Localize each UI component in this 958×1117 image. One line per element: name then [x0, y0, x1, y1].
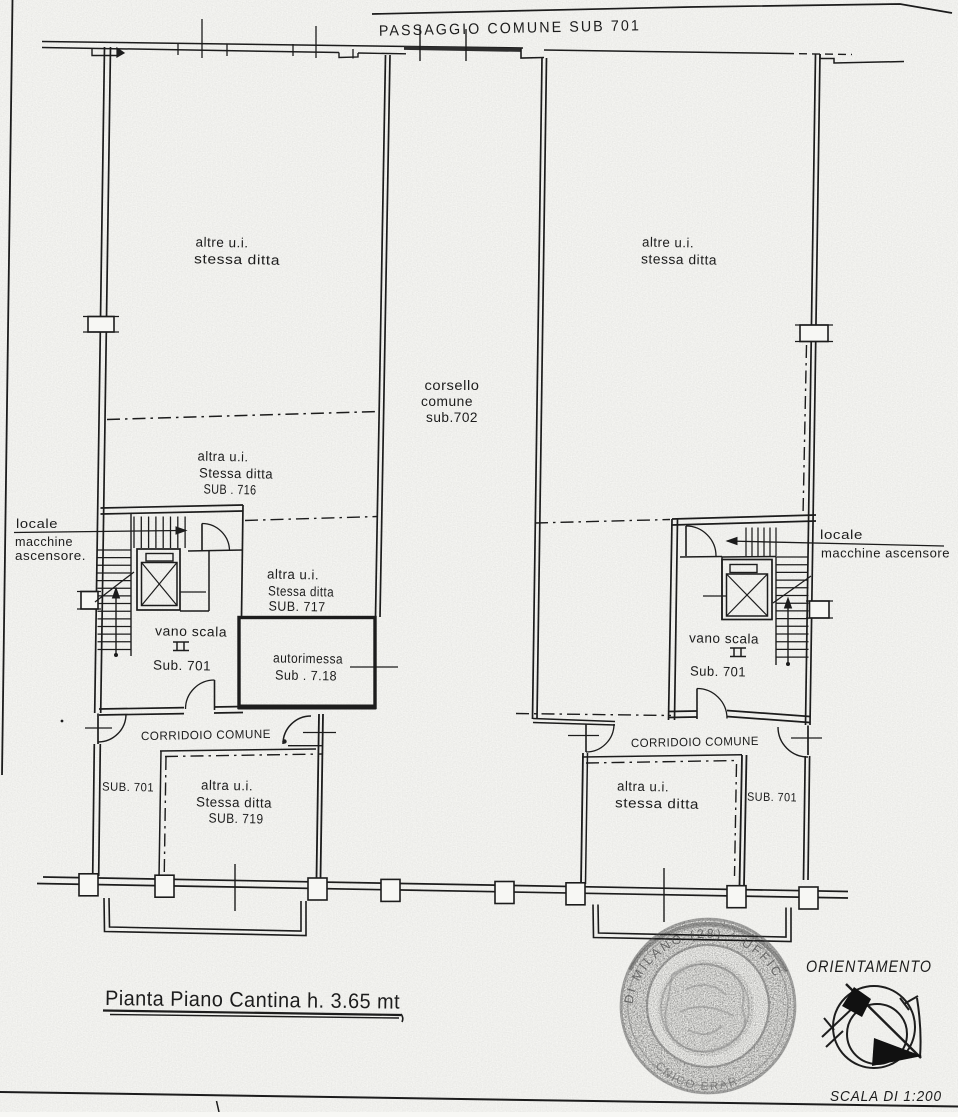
svg-text:sub.702: sub.702: [426, 410, 478, 425]
svg-text:CORRIDOIO COMUNE: CORRIDOIO COMUNE: [631, 734, 759, 750]
svg-text:SUB. 719: SUB. 719: [208, 811, 263, 827]
svg-text:stessa ditta: stessa ditta: [641, 251, 717, 267]
svg-text:SUB. 701: SUB. 701: [102, 780, 154, 795]
svg-text:Stessa ditta: Stessa ditta: [196, 794, 272, 810]
svg-text:vano scala: vano scala: [155, 623, 227, 639]
svg-text:Sub. 701: Sub. 701: [690, 664, 746, 680]
svg-text:ascensore.: ascensore.: [15, 549, 86, 563]
svg-text:CORRIDOIO COMUNE: CORRIDOIO COMUNE: [141, 727, 271, 743]
svg-text:autorimessa: autorimessa: [273, 650, 343, 666]
svg-text:Sub. 701: Sub. 701: [153, 657, 211, 673]
svg-text:SUB. 717: SUB. 717: [268, 599, 325, 615]
svg-text:altra u.i.: altra u.i.: [267, 567, 319, 583]
svg-text:Pianta Piano Cantina h. 3.6: Pianta Piano Cantina h. 3.65 mt: [105, 987, 400, 1014]
svg-text:altre u.i.: altre u.i.: [642, 235, 694, 251]
svg-text:altra u.i.: altra u.i.: [617, 779, 669, 795]
svg-text:SUB . 716: SUB . 716: [203, 482, 256, 498]
svg-text:vano scala: vano scala: [689, 630, 759, 646]
svg-text:locale: locale: [820, 528, 863, 542]
svg-text:ORIENTAMENTO: ORIENTAMENTO: [806, 957, 932, 976]
svg-text:stessa ditta: stessa ditta: [194, 251, 280, 267]
svg-text:Sub . 7.18: Sub . 7.18: [275, 667, 337, 683]
svg-text:altra u.i.: altra u.i.: [201, 778, 253, 794]
svg-text:macchine: macchine: [15, 535, 73, 549]
svg-text:SCALA DI 1:200: SCALA DI 1:200: [830, 1088, 942, 1105]
svg-text:locale: locale: [16, 517, 58, 531]
svg-text:macchine ascensore: macchine ascensore: [821, 547, 950, 561]
svg-text:comune: comune: [421, 394, 473, 409]
svg-text:altra u.i.: altra u.i.: [197, 449, 248, 465]
svg-text:SUB. 701: SUB. 701: [747, 790, 797, 805]
svg-text:altre u.i.: altre u.i.: [195, 235, 248, 251]
svg-text:corsello: corsello: [425, 378, 480, 393]
svg-text:Stessa ditta: Stessa ditta: [199, 465, 273, 481]
svg-text:Stessa ditta: Stessa ditta: [268, 583, 334, 599]
svg-text:stessa ditta: stessa ditta: [615, 795, 699, 811]
